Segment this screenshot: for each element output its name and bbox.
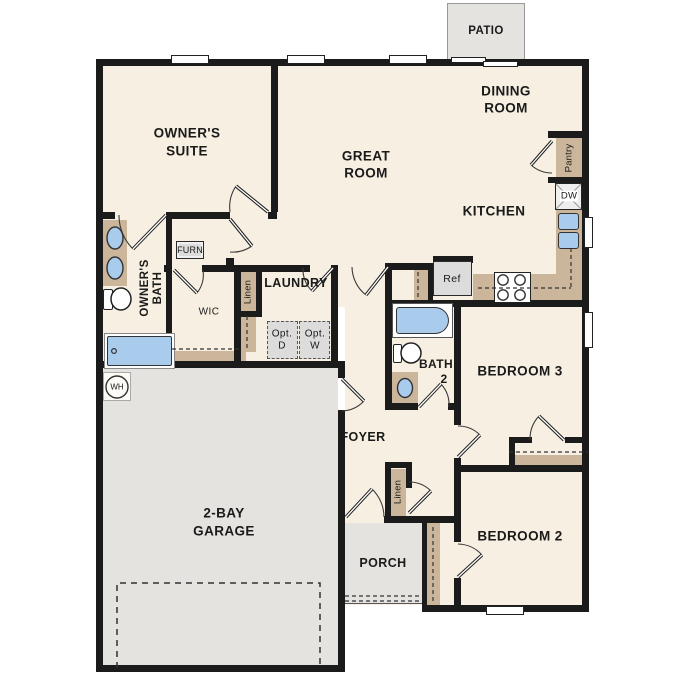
opt-dryer-label-2: D xyxy=(278,341,286,352)
floor-plan: PATIO DINING ROOM OWNER'S SUITE GREAT RO… xyxy=(0,0,687,687)
room-label-owners-suite-2: SUITE xyxy=(166,144,208,159)
wall xyxy=(385,263,415,270)
window xyxy=(389,55,427,64)
window xyxy=(584,312,593,348)
window xyxy=(584,217,593,248)
wall xyxy=(406,462,412,488)
wall xyxy=(454,300,461,425)
refrigerator-label: Ref xyxy=(443,273,461,285)
room-label-foyer: FOYER xyxy=(340,430,385,444)
bath2-vanity xyxy=(392,372,418,403)
room-label-bedroom2: BEDROOM 2 xyxy=(477,529,562,544)
stove xyxy=(494,272,531,303)
wall xyxy=(385,263,392,410)
room-label-garage-2: GARAGE xyxy=(193,524,255,539)
room-label-porch: PORCH xyxy=(359,556,406,570)
opt-dryer-label-1: Opt. xyxy=(272,329,293,340)
bedroom2-closet xyxy=(427,523,440,605)
hall-mini-closet xyxy=(414,269,428,300)
room-label-bath2-1: BATH xyxy=(419,357,453,371)
room-label-bath2-2: 2 xyxy=(440,372,447,386)
opt-washer-label-1: Opt. xyxy=(305,329,326,340)
owners-bath-line2: BATH xyxy=(152,272,164,305)
dishwasher-label: DW xyxy=(560,191,578,202)
room-label-owners-bath: OWNER'S BATH xyxy=(139,259,165,316)
sliding-door-panel xyxy=(483,61,518,67)
linen-hall-label: Linen xyxy=(243,280,254,304)
wall xyxy=(384,516,454,523)
bath2-toilet-tank xyxy=(393,344,402,363)
wall xyxy=(385,462,391,516)
wall xyxy=(226,258,234,272)
wall xyxy=(256,265,262,316)
wall xyxy=(234,311,262,317)
room-label-great-room-2: ROOM xyxy=(344,166,388,181)
room-label-owners-suite-1: OWNER'S xyxy=(154,126,221,141)
room-label-kitchen: KITCHEN xyxy=(463,204,526,219)
pantry-label: Pantry xyxy=(564,144,575,173)
opt-washer-label-2: W xyxy=(310,341,320,352)
linen-foyer-label: Linen xyxy=(393,480,404,504)
room-label-bedroom3: BEDROOM 3 xyxy=(477,364,562,379)
room-label-laundry: LAUNDRY xyxy=(264,276,327,290)
wall xyxy=(454,465,589,472)
room-label-wic: WIC xyxy=(199,307,220,318)
wall xyxy=(454,578,461,612)
wall xyxy=(96,212,115,219)
window xyxy=(486,606,524,615)
wall xyxy=(422,516,427,612)
wall xyxy=(96,665,345,672)
wall xyxy=(385,403,418,410)
owners-bath-line1: OWNER'S xyxy=(139,259,151,316)
window xyxy=(171,55,209,64)
kitchen-sink-bowl xyxy=(558,213,579,230)
wall xyxy=(164,265,172,272)
wall xyxy=(565,437,589,443)
bath2-tub xyxy=(396,307,449,334)
wall xyxy=(268,212,277,219)
sliding-door-panel xyxy=(451,57,486,63)
wall xyxy=(166,212,230,219)
room-label-garage-1: 2-BAY xyxy=(203,506,244,521)
furnace-label: FURN xyxy=(177,245,203,255)
kitchen-sink-bowl xyxy=(558,232,579,249)
window xyxy=(287,55,325,64)
room-label-great-room-1: GREAT xyxy=(342,149,390,164)
wall xyxy=(509,437,515,471)
wall xyxy=(548,131,589,138)
water-heater-label: WH xyxy=(110,383,123,392)
wall xyxy=(331,265,338,366)
owners-tub xyxy=(107,336,172,366)
wall xyxy=(338,410,345,672)
owners-toilet-tank xyxy=(103,289,113,310)
room-label-dining-1: DINING xyxy=(481,84,531,99)
owners-bath-vanity xyxy=(103,220,127,286)
room-label-dining-2: ROOM xyxy=(484,101,528,116)
room-label-patio: PATIO xyxy=(468,25,503,37)
wall xyxy=(271,59,278,212)
